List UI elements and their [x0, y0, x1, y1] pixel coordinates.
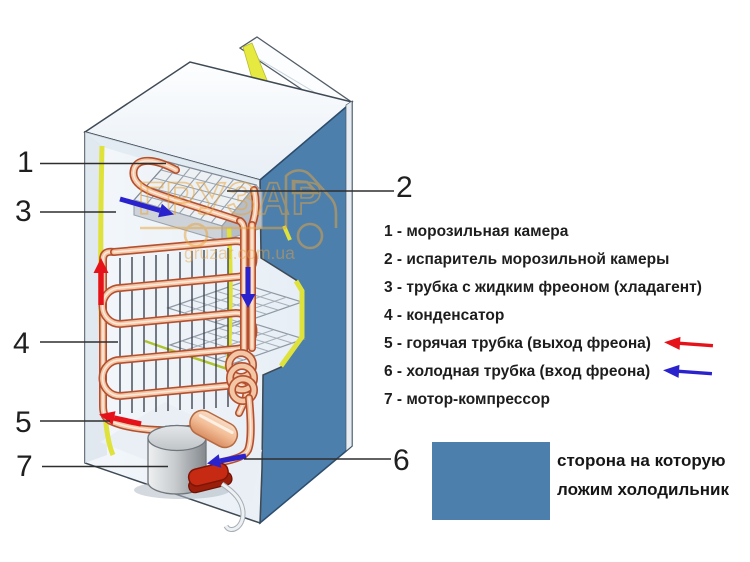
legend-item-4: 4 - конденсатор: [384, 302, 715, 330]
callout-3: 3: [15, 197, 32, 227]
orientation-caption-line2: ложим холодильник: [557, 475, 729, 504]
legend-item-2: 2 - испаритель морозильной камеры: [384, 246, 715, 274]
side-panel-back-edge: [346, 101, 352, 451]
legend-item-label: 5 - горячая трубка (выход фреона): [384, 335, 651, 353]
orientation-caption-line1: сторона на которую: [557, 446, 729, 475]
callout-5: 5: [15, 408, 32, 438]
legend: 1 - морозильная камера 2 - испаритель мо…: [384, 218, 715, 414]
callout-6: 6: [393, 446, 410, 476]
legend-item-label: 3 - трубка с жидким фреоном (хладагент): [384, 279, 702, 297]
legend-item-5: 5 - горячая трубка (выход фреона): [384, 330, 715, 358]
legend-item-label: 6 - холодная трубка (вход фреона): [384, 363, 650, 381]
lay-side-swatch: [432, 442, 550, 520]
legend-item-1: 1 - морозильная камера: [384, 218, 715, 246]
watermark-domain: gruzar.com.ua: [184, 243, 295, 263]
legend-item-label: 1 - морозильная камера: [384, 223, 568, 241]
legend-item-7: 7 - мотор-компрессор: [384, 386, 715, 414]
callout-7: 7: [16, 452, 33, 482]
legend-item-label: 7 - мотор-компрессор: [384, 391, 550, 409]
hot-flow-arrow-icon: [662, 334, 715, 354]
callout-4: 4: [13, 329, 30, 359]
legend-item-3: 3 - трубка с жидким фреоном (хладагент): [384, 274, 715, 302]
legend-item-6: 6 - холодная трубка (вход фреона): [384, 358, 715, 386]
callout-2: 2: [396, 173, 413, 203]
cold-flow-arrow-icon: [662, 362, 715, 382]
refrigerator-diagram: ГРУЗАР gruzar.com.ua: [0, 0, 750, 562]
legend-item-label: 2 - испаритель морозильной камеры: [384, 251, 669, 269]
orientation-caption: сторона на которую ложим холодильник: [557, 446, 729, 504]
legend-item-label: 4 - конденсатор: [384, 307, 504, 325]
callout-1: 1: [17, 148, 34, 178]
